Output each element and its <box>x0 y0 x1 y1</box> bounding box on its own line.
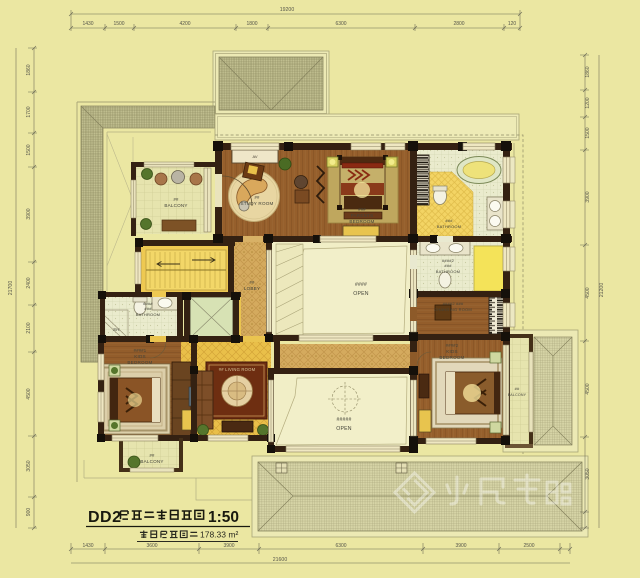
svg-text:1:50: 1:50 <box>208 509 239 526</box>
svg-text:SH.: SH. <box>113 327 121 332</box>
svg-text:###: ### <box>144 306 152 311</box>
svg-text:3900: 3900 <box>455 543 466 549</box>
svg-text:3900: 3900 <box>585 191 591 202</box>
svg-text:KIDS: KIDS <box>134 354 146 359</box>
svg-text:4500: 4500 <box>585 383 591 394</box>
svg-text:OPEN: OPEN <box>336 426 352 432</box>
svg-text:6300: 6300 <box>335 21 346 27</box>
svg-text:##: ## <box>149 453 155 458</box>
svg-text:178.33 m²: 178.33 m² <box>200 530 238 540</box>
svg-text:##: ## <box>515 386 520 391</box>
svg-text:BALCONY: BALCONY <box>140 459 163 464</box>
svg-text:1800: 1800 <box>246 21 257 27</box>
svg-text:19200: 19200 <box>280 7 295 13</box>
svg-text:21200: 21200 <box>599 283 605 298</box>
svg-text:1500: 1500 <box>113 21 124 27</box>
svg-text:1200: 1200 <box>585 97 591 108</box>
svg-text:4500: 4500 <box>585 287 591 298</box>
svg-text:3900: 3900 <box>223 543 234 549</box>
svg-text:LOBBY: LOBBY <box>244 286 260 291</box>
svg-text:1860: 1860 <box>585 66 591 77</box>
svg-text:1500: 1500 <box>26 144 32 155</box>
svg-text:####: #### <box>355 282 367 288</box>
svg-text:DD2: DD2 <box>88 509 122 526</box>
svg-text:4500: 4500 <box>26 388 32 399</box>
svg-text:3050: 3050 <box>26 460 32 471</box>
svg-text:####2: ####2 <box>446 343 459 348</box>
svg-text:4200: 4200 <box>179 21 190 27</box>
svg-text:#####: ##### <box>337 417 352 423</box>
svg-text:BEDROOM: BEDROOM <box>127 360 152 365</box>
svg-text:####2 ###: ####2 ### <box>443 301 464 306</box>
svg-text:CHANGING ROOM: CHANGING ROOM <box>434 307 472 312</box>
svg-text:21700: 21700 <box>8 281 14 296</box>
svg-text:1700: 1700 <box>26 106 32 117</box>
svg-text:1430: 1430 <box>82 21 93 27</box>
svg-text:900: 900 <box>26 508 32 517</box>
svg-text:3600: 3600 <box>146 543 157 549</box>
svg-text:3050: 3050 <box>585 468 591 479</box>
svg-text:## LIVING ROOM: ## LIVING ROOM <box>219 367 256 372</box>
svg-text:STUDY ROOM: STUDY ROOM <box>240 201 273 206</box>
svg-text:2400: 2400 <box>26 277 32 288</box>
svg-text:BALCONY: BALCONY <box>164 203 187 208</box>
svg-text:BEDROOM: BEDROOM <box>349 219 374 224</box>
svg-text:2800: 2800 <box>453 21 464 27</box>
svg-text:AV: AV <box>252 154 257 159</box>
svg-text:###: ### <box>358 207 366 212</box>
svg-text:120: 120 <box>508 21 517 27</box>
svg-text:1430: 1430 <box>82 543 93 549</box>
svg-text:KIDS: KIDS <box>446 349 458 354</box>
svg-text:3900: 3900 <box>26 208 32 219</box>
svg-text:BALCONY: BALCONY <box>508 393 527 397</box>
svg-text:##: ## <box>173 197 179 202</box>
svg-text:##: ## <box>249 280 255 285</box>
svg-text:2500: 2500 <box>523 543 534 549</box>
svg-text:1860: 1860 <box>26 64 32 75</box>
svg-text:###: ### <box>444 263 452 268</box>
svg-text:6300: 6300 <box>335 543 346 549</box>
svg-text:BATHROOM: BATHROOM <box>436 269 460 274</box>
svg-text:OPEN: OPEN <box>353 291 369 297</box>
svg-text:BATHROOM: BATHROOM <box>437 224 461 229</box>
svg-text:21600: 21600 <box>273 557 288 563</box>
svg-text:1500: 1500 <box>585 127 591 138</box>
svg-text:###: ### <box>445 218 453 223</box>
svg-text:####1: ####1 <box>134 348 147 353</box>
svg-text:PARENTS: PARENTS <box>351 213 374 218</box>
svg-text:2100: 2100 <box>26 322 32 333</box>
svg-text:##: ## <box>254 195 260 200</box>
svg-text:BEDROOM: BEDROOM <box>439 355 464 360</box>
svg-text:BATHROOM: BATHROOM <box>136 312 160 317</box>
